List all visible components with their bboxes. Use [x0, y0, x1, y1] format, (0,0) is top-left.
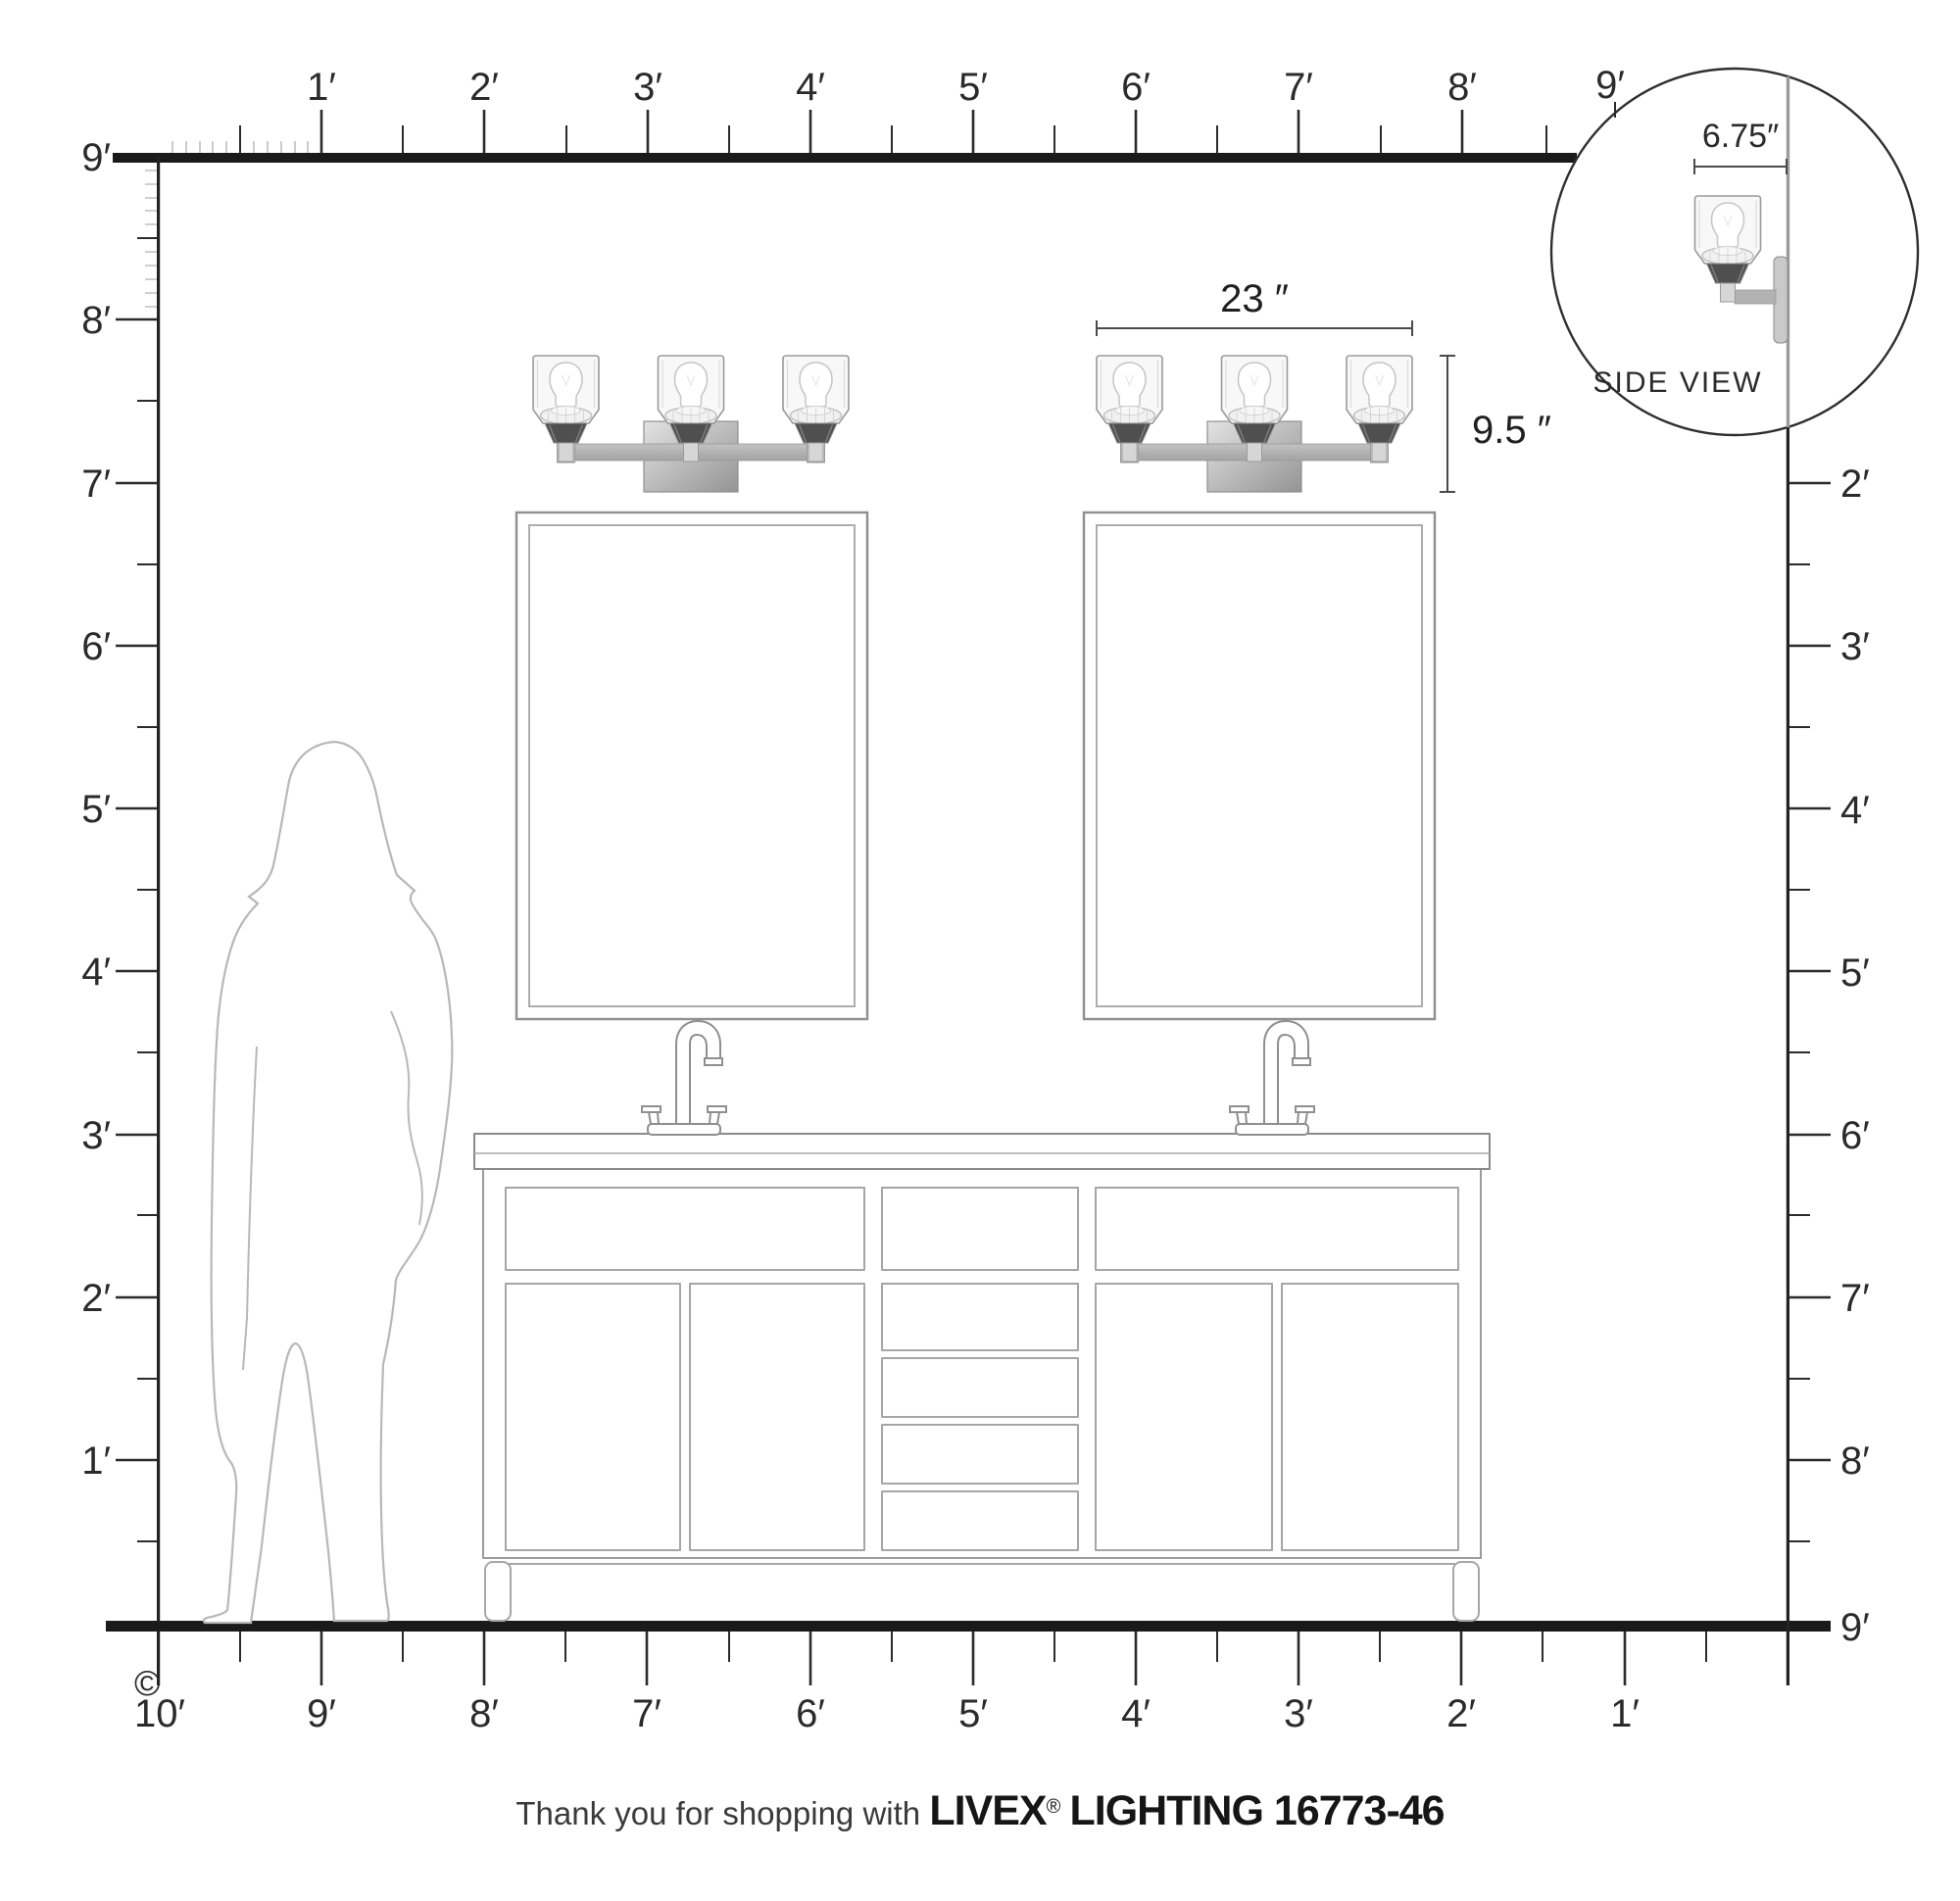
drawer — [882, 1425, 1078, 1484]
cabinet-door — [506, 1284, 680, 1550]
ruler-label: 6′ — [796, 1692, 825, 1735]
left-ruler — [116, 157, 160, 1685]
right-ruler — [1787, 427, 1831, 1685]
cabinet-door — [690, 1284, 864, 1550]
cabinet-door — [1096, 1284, 1272, 1550]
ruler-label: 7′ — [632, 1692, 661, 1735]
width-dimension-label: 23 ″ — [1220, 277, 1289, 320]
side-view-label: SIDE VIEW — [1592, 366, 1762, 399]
drawer — [882, 1491, 1078, 1550]
ruler-label: 4′ — [81, 950, 111, 994]
footer-prefix: Thank you for shopping with — [515, 1795, 920, 1831]
ruler-label: 6′ — [81, 625, 111, 668]
ruler-label: 9′ — [1595, 64, 1625, 107]
drawer — [882, 1358, 1078, 1417]
ruler-label: 4′ — [1840, 789, 1870, 832]
mirror-right — [1084, 512, 1435, 1019]
height-dimension: 9.5 ″ — [1440, 356, 1551, 492]
height-dimension-label: 9.5 ″ — [1472, 409, 1551, 452]
ruler-label: 5′ — [958, 66, 988, 109]
sink-faucet-right — [1230, 1021, 1314, 1135]
ruler-label: 2′ — [1840, 463, 1870, 506]
ruler-label: 3′ — [1840, 625, 1870, 668]
copyright-symbol: © — [134, 1663, 161, 1703]
false-drawer-right — [1096, 1188, 1458, 1270]
ruler-label: 2′ — [81, 1277, 111, 1320]
diagram-canvas: 23 ″ 9.5 ″ 6.75″ SIDE VIEW 1′ 2′ 3′ 4′ 5… — [0, 0, 1960, 1901]
ruler-label: 1′ — [81, 1439, 111, 1483]
depth-dimension-label: 6.75″ — [1702, 118, 1779, 155]
vanity-light-right — [1097, 356, 1412, 492]
vanity-light-left — [533, 356, 849, 492]
depth-dimension: 6.75″ — [1694, 118, 1787, 174]
vanity-cabinet — [474, 1134, 1490, 1621]
footer-text: Thank you for shopping with LIVEX® LIGHT… — [0, 1787, 1960, 1835]
human-silhouette — [204, 742, 453, 1623]
vanity-leg — [485, 1562, 511, 1621]
ruler-label: 2′ — [469, 66, 499, 109]
left-ruler-labels: 9′ 8′ 7′ 6′ 5′ 4′ 3′ 2′ 1′ — [81, 136, 111, 1483]
ruler-label: 1′ — [1610, 1692, 1640, 1735]
ruler-label: 8′ — [81, 299, 111, 342]
false-drawer-left — [506, 1188, 864, 1270]
ruler-label: 4′ — [1121, 1692, 1151, 1735]
ruler-label: 9′ — [81, 136, 111, 179]
ruler-label: 3′ — [633, 66, 662, 109]
ruler-label: 6′ — [1840, 1114, 1870, 1157]
ruler-label: 5′ — [958, 1692, 988, 1735]
mirror-left — [516, 512, 867, 1019]
ruler-label: 4′ — [796, 66, 825, 109]
ruler-label: 9′ — [307, 1692, 336, 1735]
cabinet-door — [1282, 1284, 1458, 1550]
wall-line — [1787, 76, 1789, 427]
top-ruler-labels: 1′ 2′ 3′ 4′ 5′ 6′ 7′ 8′ 9′ — [307, 64, 1625, 109]
side-view-circle: 6.75″ SIDE VIEW — [1551, 69, 1918, 435]
sink-faucet-left — [642, 1021, 726, 1135]
ruler-label: 8′ — [469, 1692, 499, 1735]
scale-diagram-page: 23 ″ 9.5 ″ 6.75″ SIDE VIEW 1′ 2′ 3′ 4′ 5… — [0, 0, 1960, 1901]
ruler-label: 8′ — [1840, 1439, 1870, 1483]
bottom-ruler — [106, 1621, 1831, 1685]
ruler-label: 6′ — [1121, 66, 1151, 109]
vanity-leg — [1453, 1562, 1479, 1621]
right-ruler-labels: 2′ 3′ 4′ 5′ 6′ 7′ 8′ 9′ — [1840, 463, 1870, 1649]
ruler-label: 1′ — [307, 66, 336, 109]
footer-model-number: LIGHTING 16773-46 — [1070, 1787, 1445, 1834]
ruler-label: 3′ — [81, 1114, 111, 1157]
bottom-ruler-labels: 10′ 9′ 8′ 7′ 6′ 5′ 4′ 3′ 2′ 1′ — [134, 1692, 1640, 1735]
registered-trademark-icon: ® — [1047, 1796, 1061, 1818]
ruler-label: 3′ — [1284, 1692, 1313, 1735]
ruler-label: 7′ — [1840, 1277, 1870, 1320]
countertop — [474, 1134, 1490, 1169]
width-dimension: 23 ″ — [1097, 277, 1412, 336]
ruler-label: 5′ — [1840, 951, 1870, 995]
top-ruler — [113, 110, 1577, 163]
ruler-label: 8′ — [1447, 66, 1477, 109]
ruler-label: 9′ — [1840, 1606, 1870, 1649]
footer-brand: LIVEX — [929, 1787, 1046, 1834]
false-drawer-center — [882, 1188, 1078, 1270]
drawer — [882, 1284, 1078, 1350]
ruler-label: 7′ — [81, 463, 111, 506]
ruler-label: 2′ — [1446, 1692, 1476, 1735]
ruler-label: 5′ — [81, 788, 111, 831]
ruler-label: 7′ — [1284, 66, 1313, 109]
